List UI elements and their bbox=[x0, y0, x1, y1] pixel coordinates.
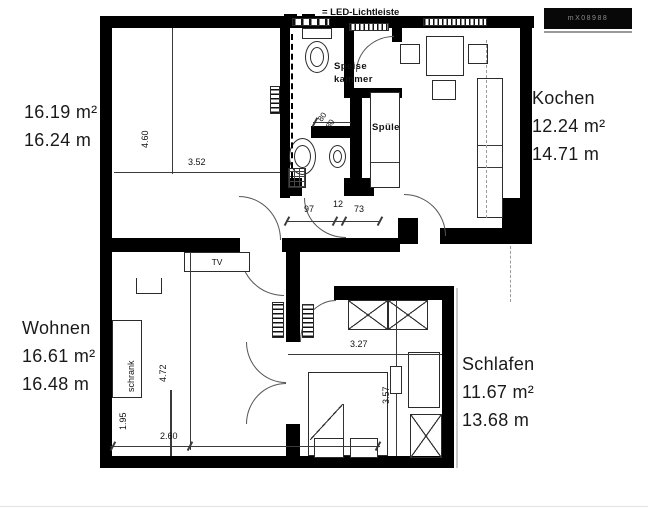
wall-kitchen-left bbox=[350, 88, 362, 196]
dim-dining-height: 4.60 bbox=[140, 130, 150, 148]
window-marker bbox=[390, 366, 402, 394]
kitchen-window bbox=[423, 18, 487, 26]
double-door-arc-upper bbox=[246, 342, 286, 383]
pantry-label-line1: Speise bbox=[334, 60, 373, 73]
boundary-line bbox=[456, 288, 458, 468]
dim-living-height: 4.72 bbox=[158, 364, 168, 382]
radiator-bedroom bbox=[302, 304, 314, 338]
kitchen-name: Kochen bbox=[532, 84, 605, 112]
bedroom-labels: Schlafen 11.67 m² 13.68 m bbox=[462, 350, 534, 434]
wardrobe-x-left bbox=[348, 300, 388, 330]
dim-bedroom-height: 3.57 bbox=[381, 386, 391, 404]
dim-hall-c: 73 bbox=[354, 204, 364, 214]
led-strip-bath bbox=[291, 34, 293, 178]
dim-bedroom-width: 3.27 bbox=[350, 339, 368, 349]
wall-living-bedroom-b bbox=[286, 424, 300, 458]
dim-line-dining-v bbox=[172, 28, 173, 174]
kitchen-labels: Kochen 12.24 m² 14.71 m bbox=[532, 84, 605, 168]
dim-hall-b: 12 bbox=[333, 199, 343, 209]
toilet-cistern bbox=[302, 28, 332, 39]
dim-hall-a: 97 bbox=[304, 204, 314, 214]
kitchen-table bbox=[426, 36, 464, 76]
dim-dining-width: 3.52 bbox=[188, 157, 206, 167]
sink-label: Spüle bbox=[372, 122, 400, 133]
wall-mid-left bbox=[100, 238, 240, 252]
pillow bbox=[314, 438, 344, 458]
pillow bbox=[350, 438, 378, 458]
logo-underline bbox=[544, 31, 632, 33]
dining-area: 16.19 m² bbox=[24, 98, 97, 126]
radiator-living bbox=[272, 302, 284, 338]
boundary-dash bbox=[510, 246, 511, 302]
kitchen-perimeter: 14.71 m bbox=[532, 140, 605, 168]
living-labels: Wohnen 16.61 m² 16.48 m bbox=[22, 314, 95, 398]
counter-divider bbox=[478, 167, 502, 168]
wardrobe-label: schrank bbox=[126, 360, 136, 392]
tv-board: TV bbox=[184, 252, 250, 272]
bedroom-area: 11.67 m² bbox=[462, 378, 534, 406]
living-area: 16.61 m² bbox=[22, 342, 95, 370]
sink-counter bbox=[370, 92, 400, 188]
logo-badge: mX08988 bbox=[544, 8, 632, 29]
toilet-bowl-inner bbox=[310, 47, 324, 67]
kitchen-door-arc bbox=[404, 194, 446, 236]
floorplan: = LED-Lichtleiste mX08988 bbox=[0, 0, 648, 520]
bedroom-chest-x bbox=[410, 414, 442, 458]
bedroom-perimeter: 13.68 m bbox=[462, 406, 534, 434]
living-name: Wohnen bbox=[22, 314, 95, 342]
double-door-arc-lower bbox=[246, 383, 286, 424]
dim-line-bedroom-h bbox=[288, 354, 442, 355]
dining-perimeter: 16.24 m bbox=[24, 126, 97, 154]
led-strip-kitchen bbox=[486, 40, 487, 218]
side-bracket bbox=[136, 278, 162, 294]
dining-door-arc bbox=[239, 196, 281, 240]
counter-divider bbox=[478, 145, 502, 146]
kitchen-area: 12.24 m² bbox=[532, 112, 605, 140]
pantry-label-line2: kammer bbox=[334, 73, 373, 86]
dim-line-dining-h bbox=[114, 172, 280, 173]
pantry-label: Speise kammer bbox=[334, 60, 373, 86]
bedroom-name: Schlafen bbox=[462, 350, 534, 378]
wall-living-bedroom-a bbox=[286, 252, 300, 342]
bed-fold bbox=[310, 404, 344, 440]
counter-divider bbox=[371, 162, 399, 163]
dim-living-width: 2.60 bbox=[160, 431, 178, 441]
kitchen-counter-right bbox=[477, 78, 503, 218]
bath-window bbox=[292, 18, 330, 26]
wall-bedroom-top bbox=[334, 286, 444, 300]
bidet-inner bbox=[333, 150, 342, 163]
chair-bottom bbox=[432, 80, 456, 100]
wall-mid-right bbox=[282, 238, 400, 252]
wardrobe-x-right bbox=[388, 300, 428, 330]
washbasin-inner bbox=[294, 145, 311, 168]
dining-measurements: 16.19 m² 16.24 m bbox=[24, 98, 97, 154]
bedroom-dresser bbox=[408, 352, 440, 408]
chair-left bbox=[400, 44, 420, 64]
wall-bottom bbox=[100, 456, 454, 468]
dim-line-living-h bbox=[110, 446, 380, 447]
chair-right bbox=[468, 44, 488, 64]
pantry-shelf bbox=[349, 23, 389, 31]
wall-right-bedroom bbox=[442, 286, 454, 468]
dim-tick bbox=[377, 216, 383, 226]
radiator-dining bbox=[270, 86, 280, 114]
dim-line-living-v bbox=[190, 252, 191, 450]
wall-kitchen-bottom bbox=[440, 228, 532, 244]
living-perimeter: 16.48 m bbox=[22, 370, 95, 398]
dim-living-nook: 1.95 bbox=[118, 412, 128, 430]
scan-line bbox=[0, 506, 648, 507]
